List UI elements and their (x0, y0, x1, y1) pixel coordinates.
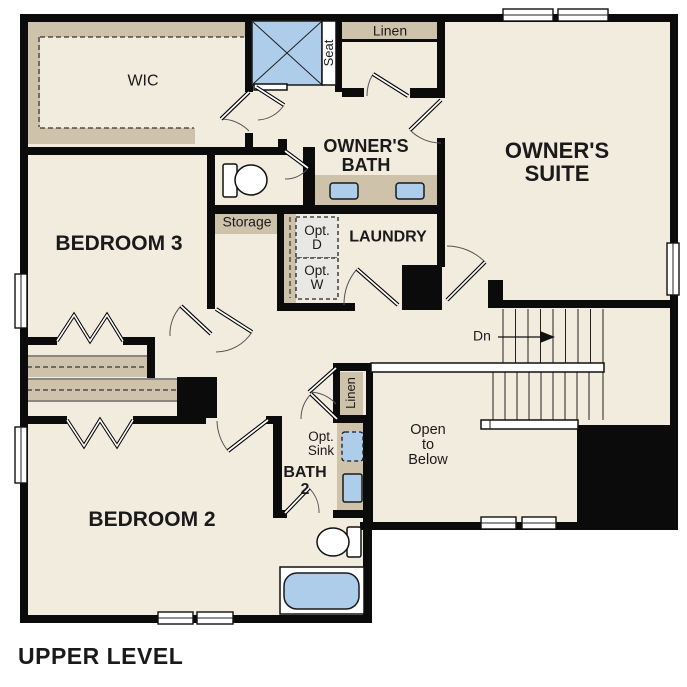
label-owners-suite: OWNER'S SUITE (505, 139, 609, 185)
label-shower-seat: Seat (322, 40, 336, 67)
label-storage: Storage (222, 215, 271, 230)
shower (252, 21, 322, 90)
label-bedroom2: BEDROOM 2 (88, 509, 215, 531)
optional-sink (342, 432, 363, 461)
floor-plan-drawing (0, 0, 687, 687)
label-wic: WIC (127, 74, 158, 91)
window (503, 9, 553, 21)
window (15, 427, 27, 483)
label-stairs-down: Dn (473, 329, 491, 344)
window (522, 517, 556, 529)
label-linen-upper: Linen (373, 24, 407, 39)
stair-railing (371, 363, 604, 372)
label-linen-lower: Linen (344, 377, 358, 409)
window (481, 517, 516, 529)
window (15, 274, 27, 328)
toilet-bath2 (317, 527, 361, 557)
toilet-owners (223, 164, 267, 197)
label-laundry: LAUNDRY (349, 230, 427, 247)
window (158, 612, 193, 624)
plan-title: UPPER LEVEL (18, 643, 183, 670)
window (197, 612, 233, 624)
stair-railing-lower (481, 420, 578, 429)
bathtub (280, 567, 364, 614)
label-optional-dryer: Opt. D (304, 224, 330, 252)
label-bath2: BATH 2 (283, 465, 326, 499)
floor-plan: WIC Seat Linen OWNER'S BATH OWNER'S SUIT… (0, 0, 687, 687)
window (558, 9, 608, 21)
label-owners-bath: OWNER'S BATH (323, 137, 408, 175)
label-optional-washer: Opt. W (304, 264, 330, 292)
window (667, 243, 679, 295)
label-open-to-below: Open to Below (408, 423, 448, 469)
label-optional-sink: Opt. Sink (308, 430, 334, 458)
label-bedroom3: BEDROOM 3 (55, 233, 182, 255)
